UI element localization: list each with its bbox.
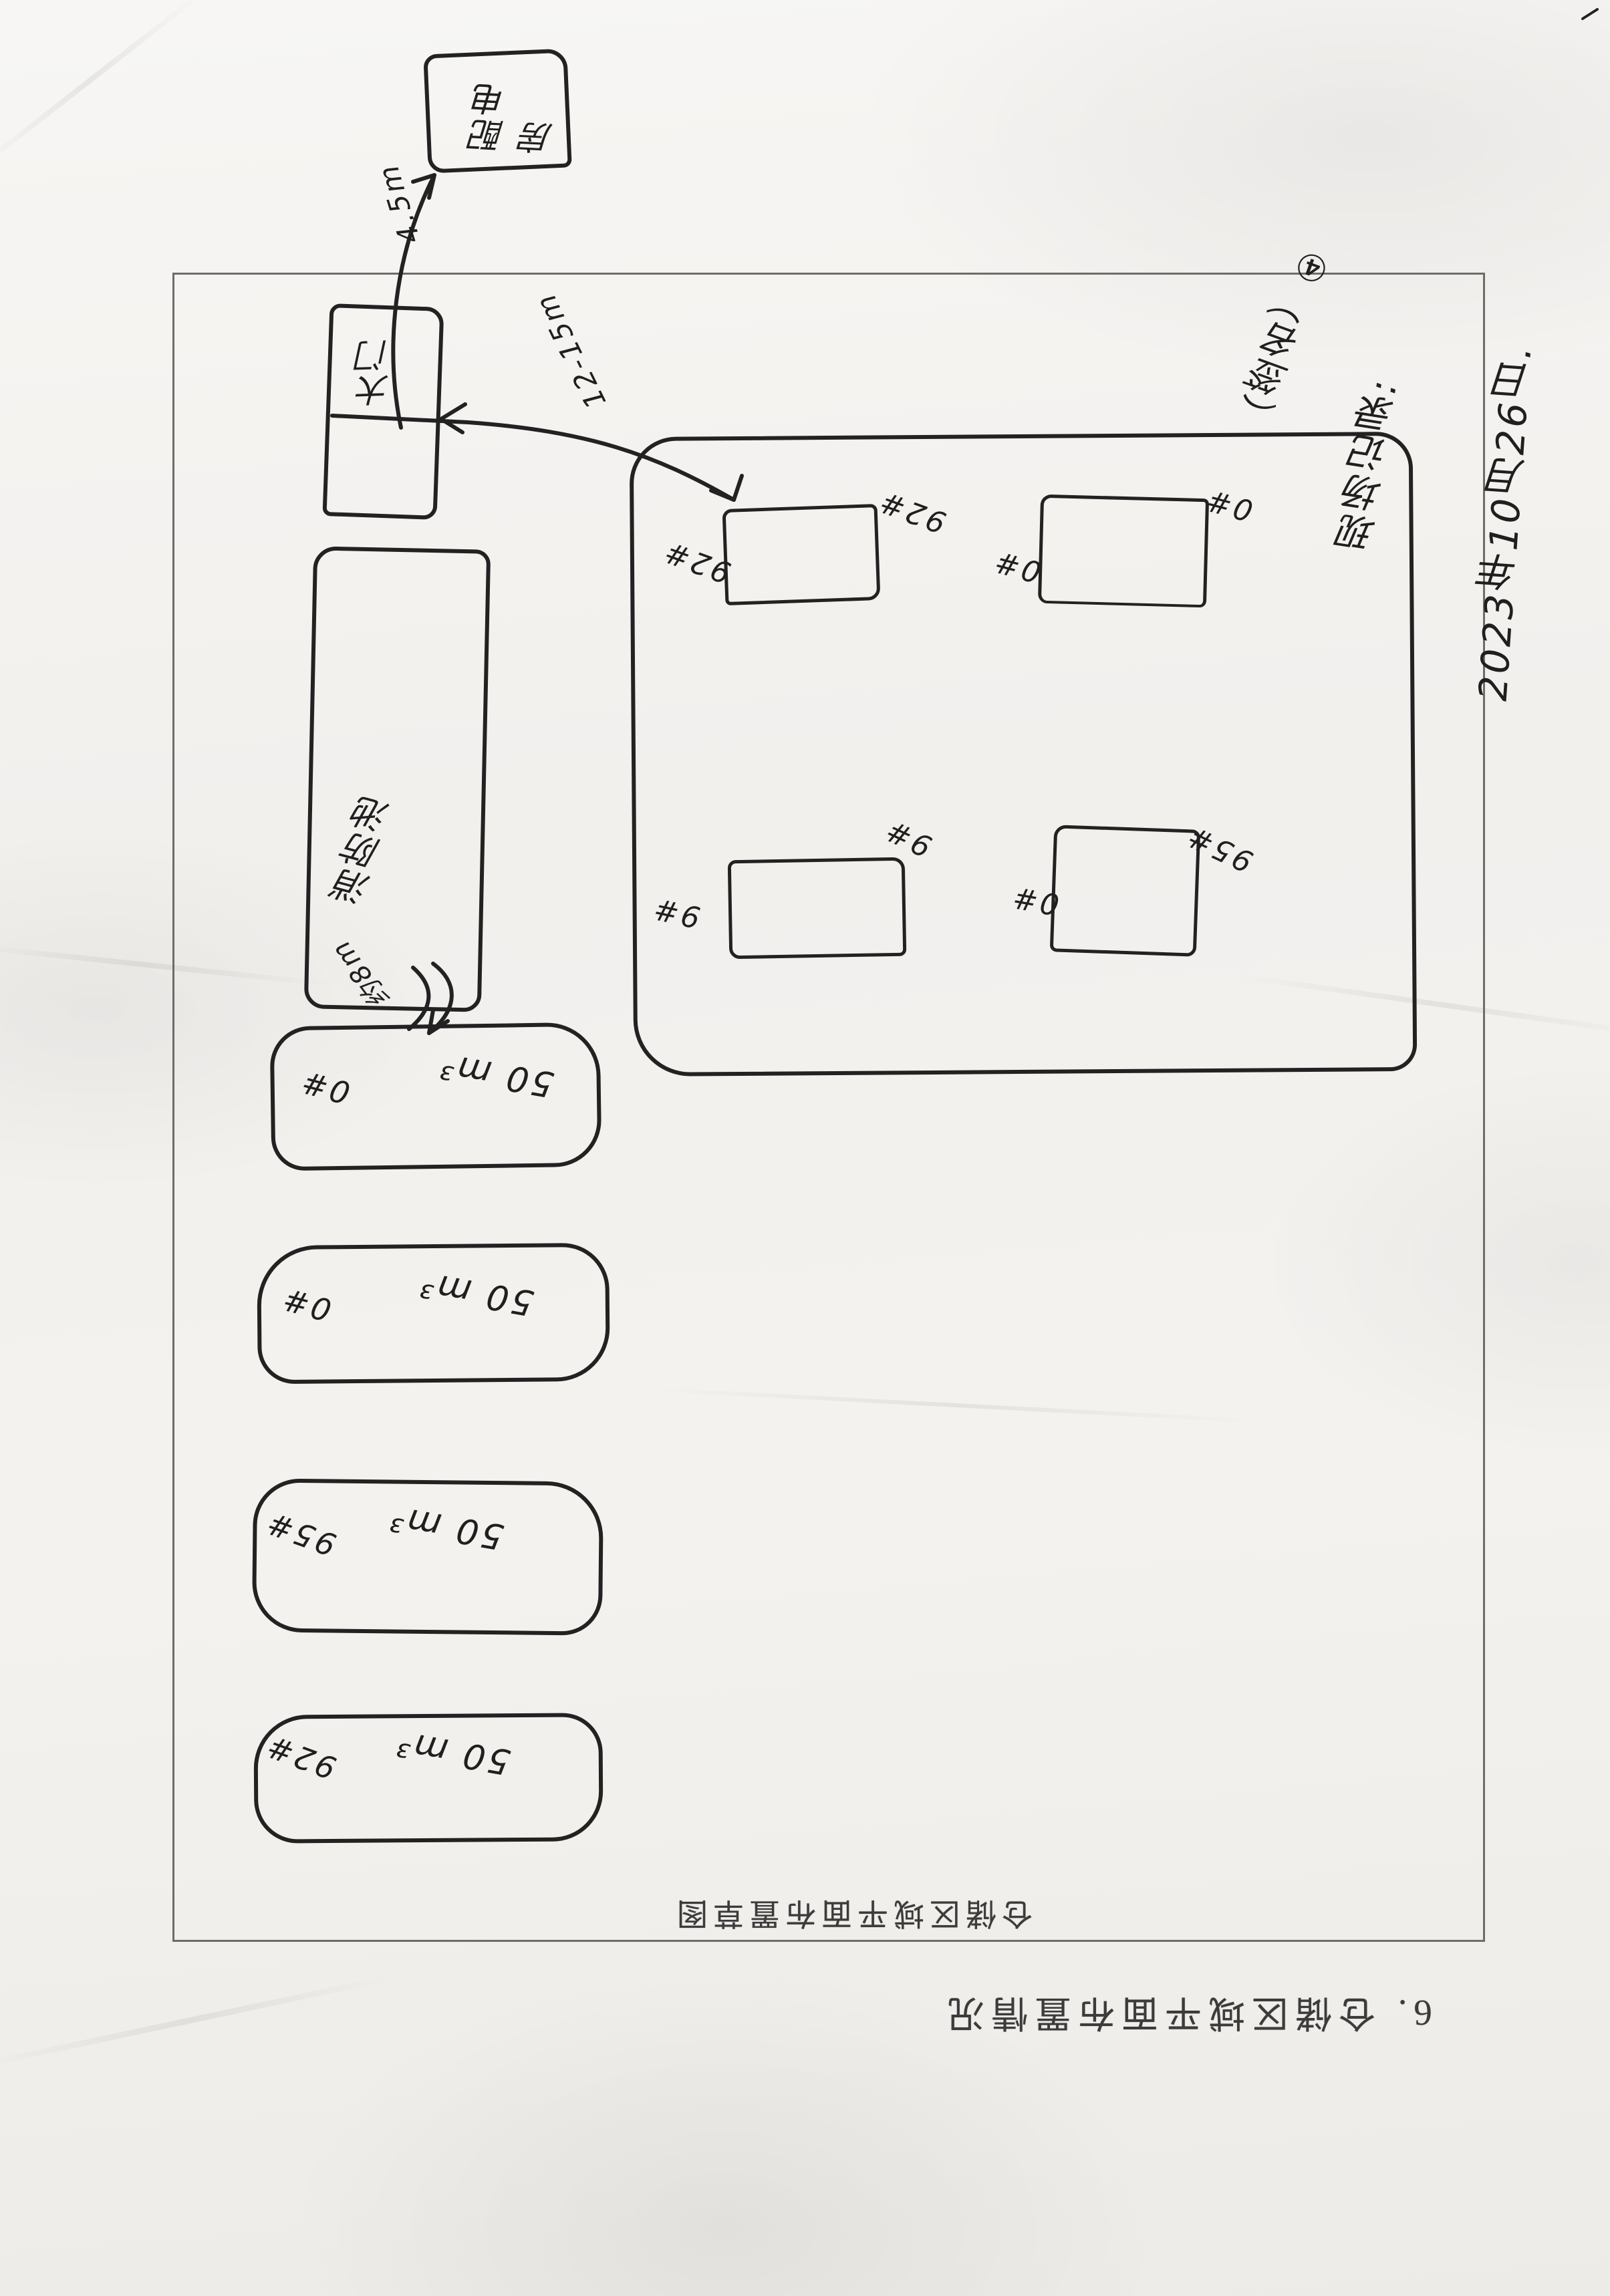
- scanned-page: 仓储区域平面布置草图 6. 仓储区域平面布置情况 2023年10月26日. 现场…: [0, 0, 1610, 2296]
- paper-crease: [0, 0, 199, 171]
- outside-box-label: 配电房: [466, 61, 567, 156]
- paper-crease: [0, 1974, 397, 2069]
- distance-outside-box: 4.5m: [371, 159, 426, 248]
- inner-box-bottom-right: [1050, 825, 1200, 957]
- inner-box-top-left: [722, 504, 881, 605]
- gate-box-label: 大门: [352, 325, 401, 407]
- page-title: 6. 仓储区域平面布置情况: [941, 1990, 1432, 2043]
- inner-box-top-right: [1038, 494, 1209, 608]
- tank-box-3: [252, 1478, 603, 1635]
- sketch-caption: 仓储区域平面布置草图: [672, 1894, 1033, 1938]
- inner-box-bottom-left: [728, 857, 907, 960]
